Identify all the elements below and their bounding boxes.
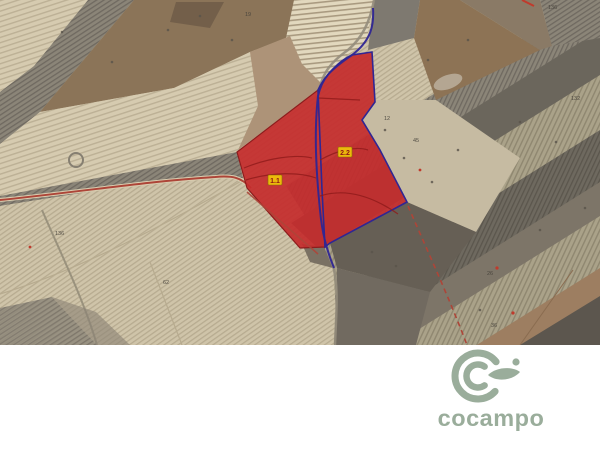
speckle-dot <box>427 59 430 62</box>
parcel-label-text: 1.1 <box>270 178 280 185</box>
parcel-label-tag-2[interactable]: 2.2 <box>338 147 352 157</box>
listing-image: 1.1 2.2 136 132 19 12 45 26 36 62 136 <box>0 0 600 465</box>
parcel-number: 45 <box>413 138 419 144</box>
logo-leaf-icon <box>488 368 520 379</box>
speckle-dot <box>457 149 460 152</box>
brand-logo: cocampo <box>420 342 580 442</box>
speckle-dot <box>539 229 542 232</box>
speckle-dot <box>519 121 522 124</box>
red-mark <box>419 169 422 172</box>
speckle-dot <box>467 39 470 42</box>
speckle-dot <box>403 157 406 160</box>
speckle-dot <box>479 309 482 312</box>
speckle-dot <box>231 39 234 42</box>
speckle-dot <box>61 31 64 34</box>
brand-wordmark: cocampo <box>438 405 545 431</box>
speckle-dot <box>167 29 170 32</box>
speckle-dot <box>371 251 374 254</box>
parcel-number: 62 <box>163 280 169 286</box>
parcel-number: 132 <box>571 96 580 102</box>
speckle-dot <box>111 61 114 64</box>
parcel-number: 36 <box>491 323 497 329</box>
speckle-dot <box>384 129 387 132</box>
parcel-number: 26 <box>487 271 493 277</box>
speckle-dot <box>584 207 587 210</box>
parcel-number: 12 <box>384 116 390 122</box>
speckle-dot <box>395 265 398 268</box>
logo-inner-c <box>466 365 484 388</box>
red-mark <box>495 266 498 269</box>
speckle-dot <box>555 141 558 144</box>
logo-dot <box>512 358 519 365</box>
parcel-label-text: 2.2 <box>340 150 350 157</box>
parcel-label-tag-1[interactable]: 1.1 <box>268 175 282 185</box>
speckle-dot <box>431 181 434 184</box>
cocampo-logo-icon <box>455 353 520 399</box>
parcel-number: 136 <box>548 5 557 11</box>
red-mark <box>29 246 32 249</box>
parcel-number: 136 <box>55 231 64 237</box>
parcel-number: 19 <box>245 12 251 18</box>
red-mark <box>511 311 514 314</box>
aerial-photo-map: 1.1 2.2 136 132 19 12 45 26 36 62 136 <box>0 0 600 345</box>
speckle-dot <box>199 15 202 18</box>
